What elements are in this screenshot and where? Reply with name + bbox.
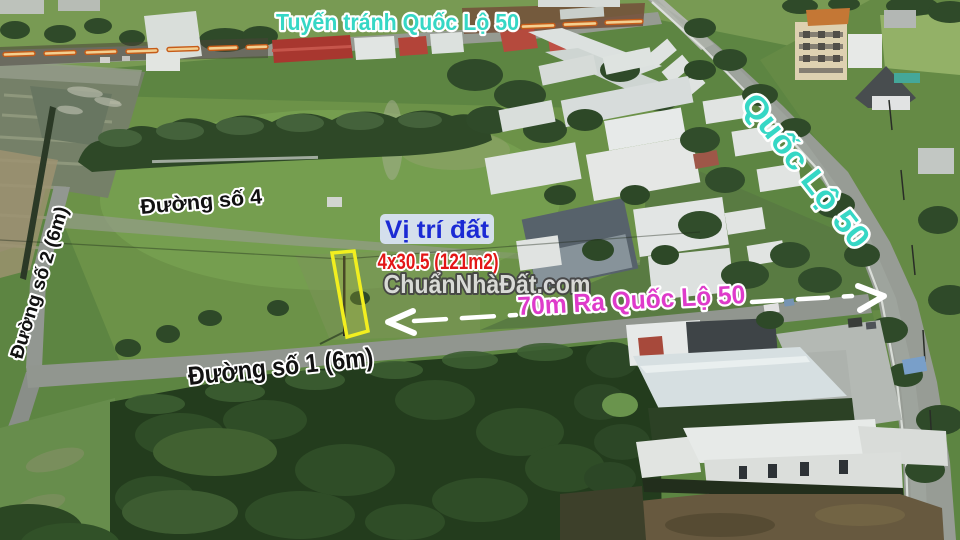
svg-text:Vị trí đất: Vị trí đất	[385, 216, 490, 244]
svg-text:Tuyến tránh Quốc Lộ 50: Tuyến tránh Quốc Lộ 50	[276, 9, 519, 35]
